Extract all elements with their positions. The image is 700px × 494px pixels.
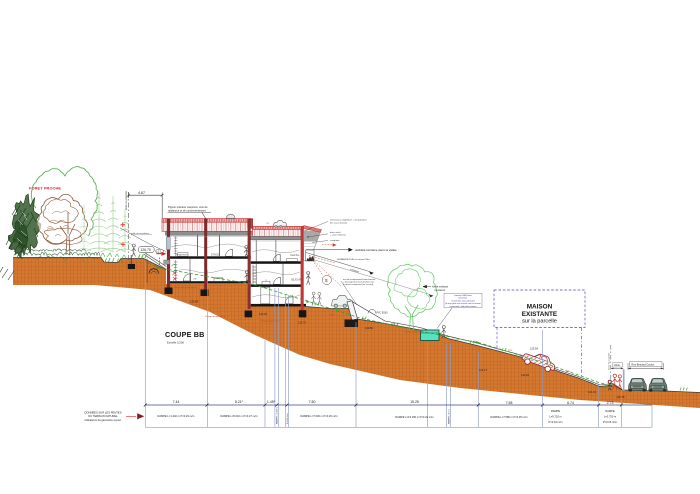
- svg-text:7.44: 7.44: [173, 400, 180, 404]
- svg-text:7.80: 7.80: [309, 400, 316, 404]
- svg-text:RAMPE L=1.440 m P=0.29 m/m: RAMPE L=1.440 m P=0.29 m/m: [157, 414, 194, 418]
- svg-text:limite de propriété: limite de propriété: [125, 190, 128, 210]
- svg-text:120.95: 120.95: [617, 395, 625, 399]
- svg-text:Garage périphérique: Garage périphérique: [205, 315, 226, 318]
- svg-text:PVC Ø160: PVC Ø160: [377, 313, 389, 315]
- svg-text:P=0.04 m/m: P=0.04 m/m: [548, 420, 562, 424]
- svg-text:124.17: 124.17: [479, 368, 487, 372]
- svg-text:ETAGE: ETAGE: [211, 253, 219, 256]
- svg-text:Garage périphérique: Garage périphérique: [260, 319, 281, 322]
- svg-text:18%: 18%: [566, 371, 570, 373]
- svg-text:communal ) vide plein niveau: communal ) vide plein niveau: [450, 306, 478, 308]
- svg-text:32%: 32%: [508, 350, 512, 352]
- svg-text:casquette: casquette: [330, 239, 340, 242]
- svg-text:raidisseur et de contreventeme: raidisseur et de contreventement: [168, 208, 206, 212]
- svg-text:EXISTANTE: EXISTANTE: [522, 311, 558, 318]
- svg-text:RAMPE L=15.250 m P=0.23 m/m: RAMPE L=15.250 m P=0.23 m/m: [395, 415, 434, 419]
- svg-text:visibilité lointaine dans la v: visibilité lointaine dans la vallée: [355, 248, 397, 252]
- svg-text:RAMPE: RAMPE: [551, 409, 560, 413]
- svg-text:+ store extérieur: + store extérieur: [330, 234, 346, 237]
- svg-text:chambre: chambre: [290, 254, 300, 257]
- svg-text:18%: 18%: [455, 339, 459, 341]
- svg-text:6.74: 6.74: [567, 401, 574, 405]
- svg-text:le réseau communal (av. accord: le réseau communal (av. accord): [343, 283, 373, 286]
- svg-text:131.75: 131.75: [298, 321, 306, 325]
- svg-text:citernes 5000 litres: citernes 5000 litres: [454, 294, 471, 297]
- svg-text:121.24: 121.24: [588, 390, 596, 394]
- svg-text:Echelle 1/200: Echelle 1/200: [167, 341, 184, 345]
- svg-text:grille de ventilation: grille de ventilation: [131, 232, 150, 235]
- svg-text:L=2.750 m: L=2.750 m: [604, 415, 616, 419]
- svg-text:P=0.05 m/m: P=0.05 m/m: [603, 420, 617, 424]
- svg-text:126.70: 126.70: [140, 248, 150, 252]
- svg-text:(le trop plein est évacué vers: (le trop plein est évacué vers le réseau: [445, 302, 482, 305]
- svg-text:Garage périphérique: Garage périphérique: [404, 331, 425, 334]
- svg-text:RAMPE L=1.455 m: RAMPE L=1.455 m: [276, 406, 279, 424]
- svg-text:+ drainage des eaux de pluie v: + drainage des eaux de pluie vers: [343, 280, 374, 283]
- svg-text:129.82: 129.82: [365, 326, 373, 330]
- svg-text:recueil des eaux pluviales: recueil des eaux pluviales: [451, 299, 475, 302]
- svg-text:conservé: conservé: [435, 288, 446, 292]
- svg-text:RAMPE: RAMPE: [605, 409, 614, 413]
- svg-text:étanchéité périphérique: étanchéité périphérique: [174, 286, 198, 289]
- svg-text:123.54: 123.54: [530, 347, 538, 351]
- svg-text:122.94: 122.94: [521, 373, 529, 377]
- svg-text:126.58: 126.58: [190, 300, 198, 304]
- svg-text:FORET PROCHE: FORET PROCHE: [29, 186, 61, 191]
- svg-text:mur de soutènement béton banch: mur de soutènement béton banché: [343, 278, 376, 281]
- svg-text:DONNEES SUR LES PENTES: DONNEES SUR LES PENTES: [84, 411, 121, 415]
- svg-text:sur la parcelle: sur la parcelle: [522, 319, 557, 325]
- svg-text:2.73: 2.73: [607, 401, 614, 405]
- svg-text:enterrées:: enterrées:: [458, 297, 468, 300]
- svg-text:rangement: rangement: [176, 253, 188, 256]
- svg-text:indications du géomètre expert: indications du géomètre expert.: [84, 418, 122, 422]
- svg-text:8.21⁵: 8.21⁵: [235, 400, 244, 404]
- svg-text:brise soleil: brise soleil: [330, 231, 341, 234]
- svg-text:toit terrasse végétalisé + réc: toit terrasse végétalisé + récupération: [330, 219, 367, 222]
- svg-text:RAMPE L=0.5 m: RAMPE L=0.5 m: [447, 409, 450, 424]
- svg-text:des eaux de pluie: des eaux de pluie: [330, 222, 348, 224]
- svg-text:4.67: 4.67: [138, 191, 145, 195]
- svg-text:7.58: 7.58: [506, 401, 513, 405]
- svg-text:limite de propriété: limite de propriété: [607, 352, 610, 370]
- svg-text:RAMPE L=7.000 m P=0.30 m/m: RAMPE L=7.000 m P=0.30 m/m: [300, 414, 337, 418]
- svg-text:18%: 18%: [330, 315, 334, 317]
- svg-text:Rue Bernard Coulon: Rue Bernard Coulon: [632, 363, 655, 366]
- svg-text:RAMPE L=7.580 m P=0.35 m/m: RAMPE L=7.580 m P=0.35 m/m: [490, 415, 527, 419]
- svg-text:Voirie: Voirie: [614, 364, 621, 367]
- svg-text:15.25: 15.25: [410, 400, 419, 404]
- svg-text:+1.2: +1.2: [156, 250, 161, 253]
- svg-text:DU TERRAIN NATUREL: DU TERRAIN NATUREL: [88, 414, 118, 418]
- svg-text:S: S: [325, 278, 328, 283]
- svg-text:L=9.720 m: L=9.720 m: [549, 415, 561, 419]
- svg-text:SEJOUR: SEJOUR: [291, 278, 301, 281]
- svg-text:1.45⁵: 1.45⁵: [267, 400, 276, 404]
- svg-text:RAMPE L=8.210 m P=0.27 m/m: RAMPE L=8.210 m P=0.27 m/m: [220, 414, 257, 418]
- svg-text:MAISON: MAISON: [527, 304, 553, 311]
- svg-text:SEPARATIF/VUE en amont-CRuz: SEPARATIF/VUE en amont-CRuz: [337, 258, 370, 261]
- svg-text:132.35: 132.35: [259, 312, 267, 316]
- svg-text:P=0.28 m/m: P=0.28 m/m: [287, 413, 289, 424]
- svg-text:COUPE BB: COUPE BB: [165, 330, 205, 339]
